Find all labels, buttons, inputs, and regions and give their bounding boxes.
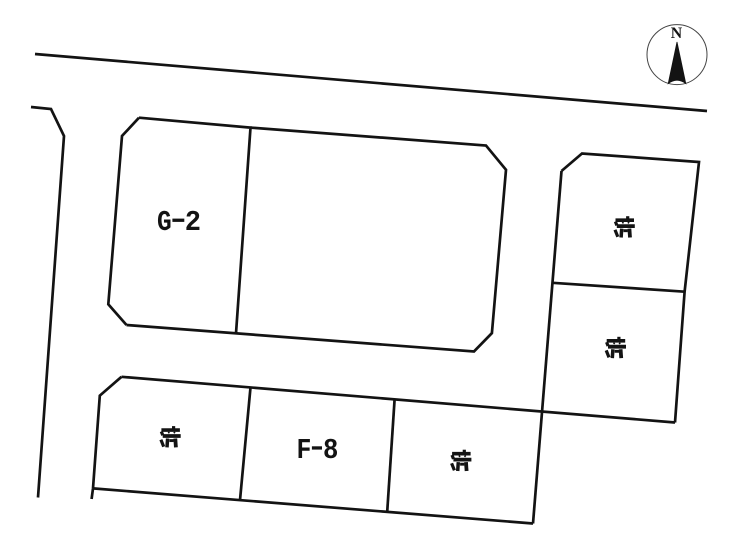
svg-text:8: 8 — [323, 434, 338, 467]
svg-text:2: 2 — [185, 206, 201, 239]
svg-text:N: N — [671, 25, 683, 42]
svg-text:F: F — [297, 434, 312, 467]
svg-text:G: G — [157, 206, 172, 239]
